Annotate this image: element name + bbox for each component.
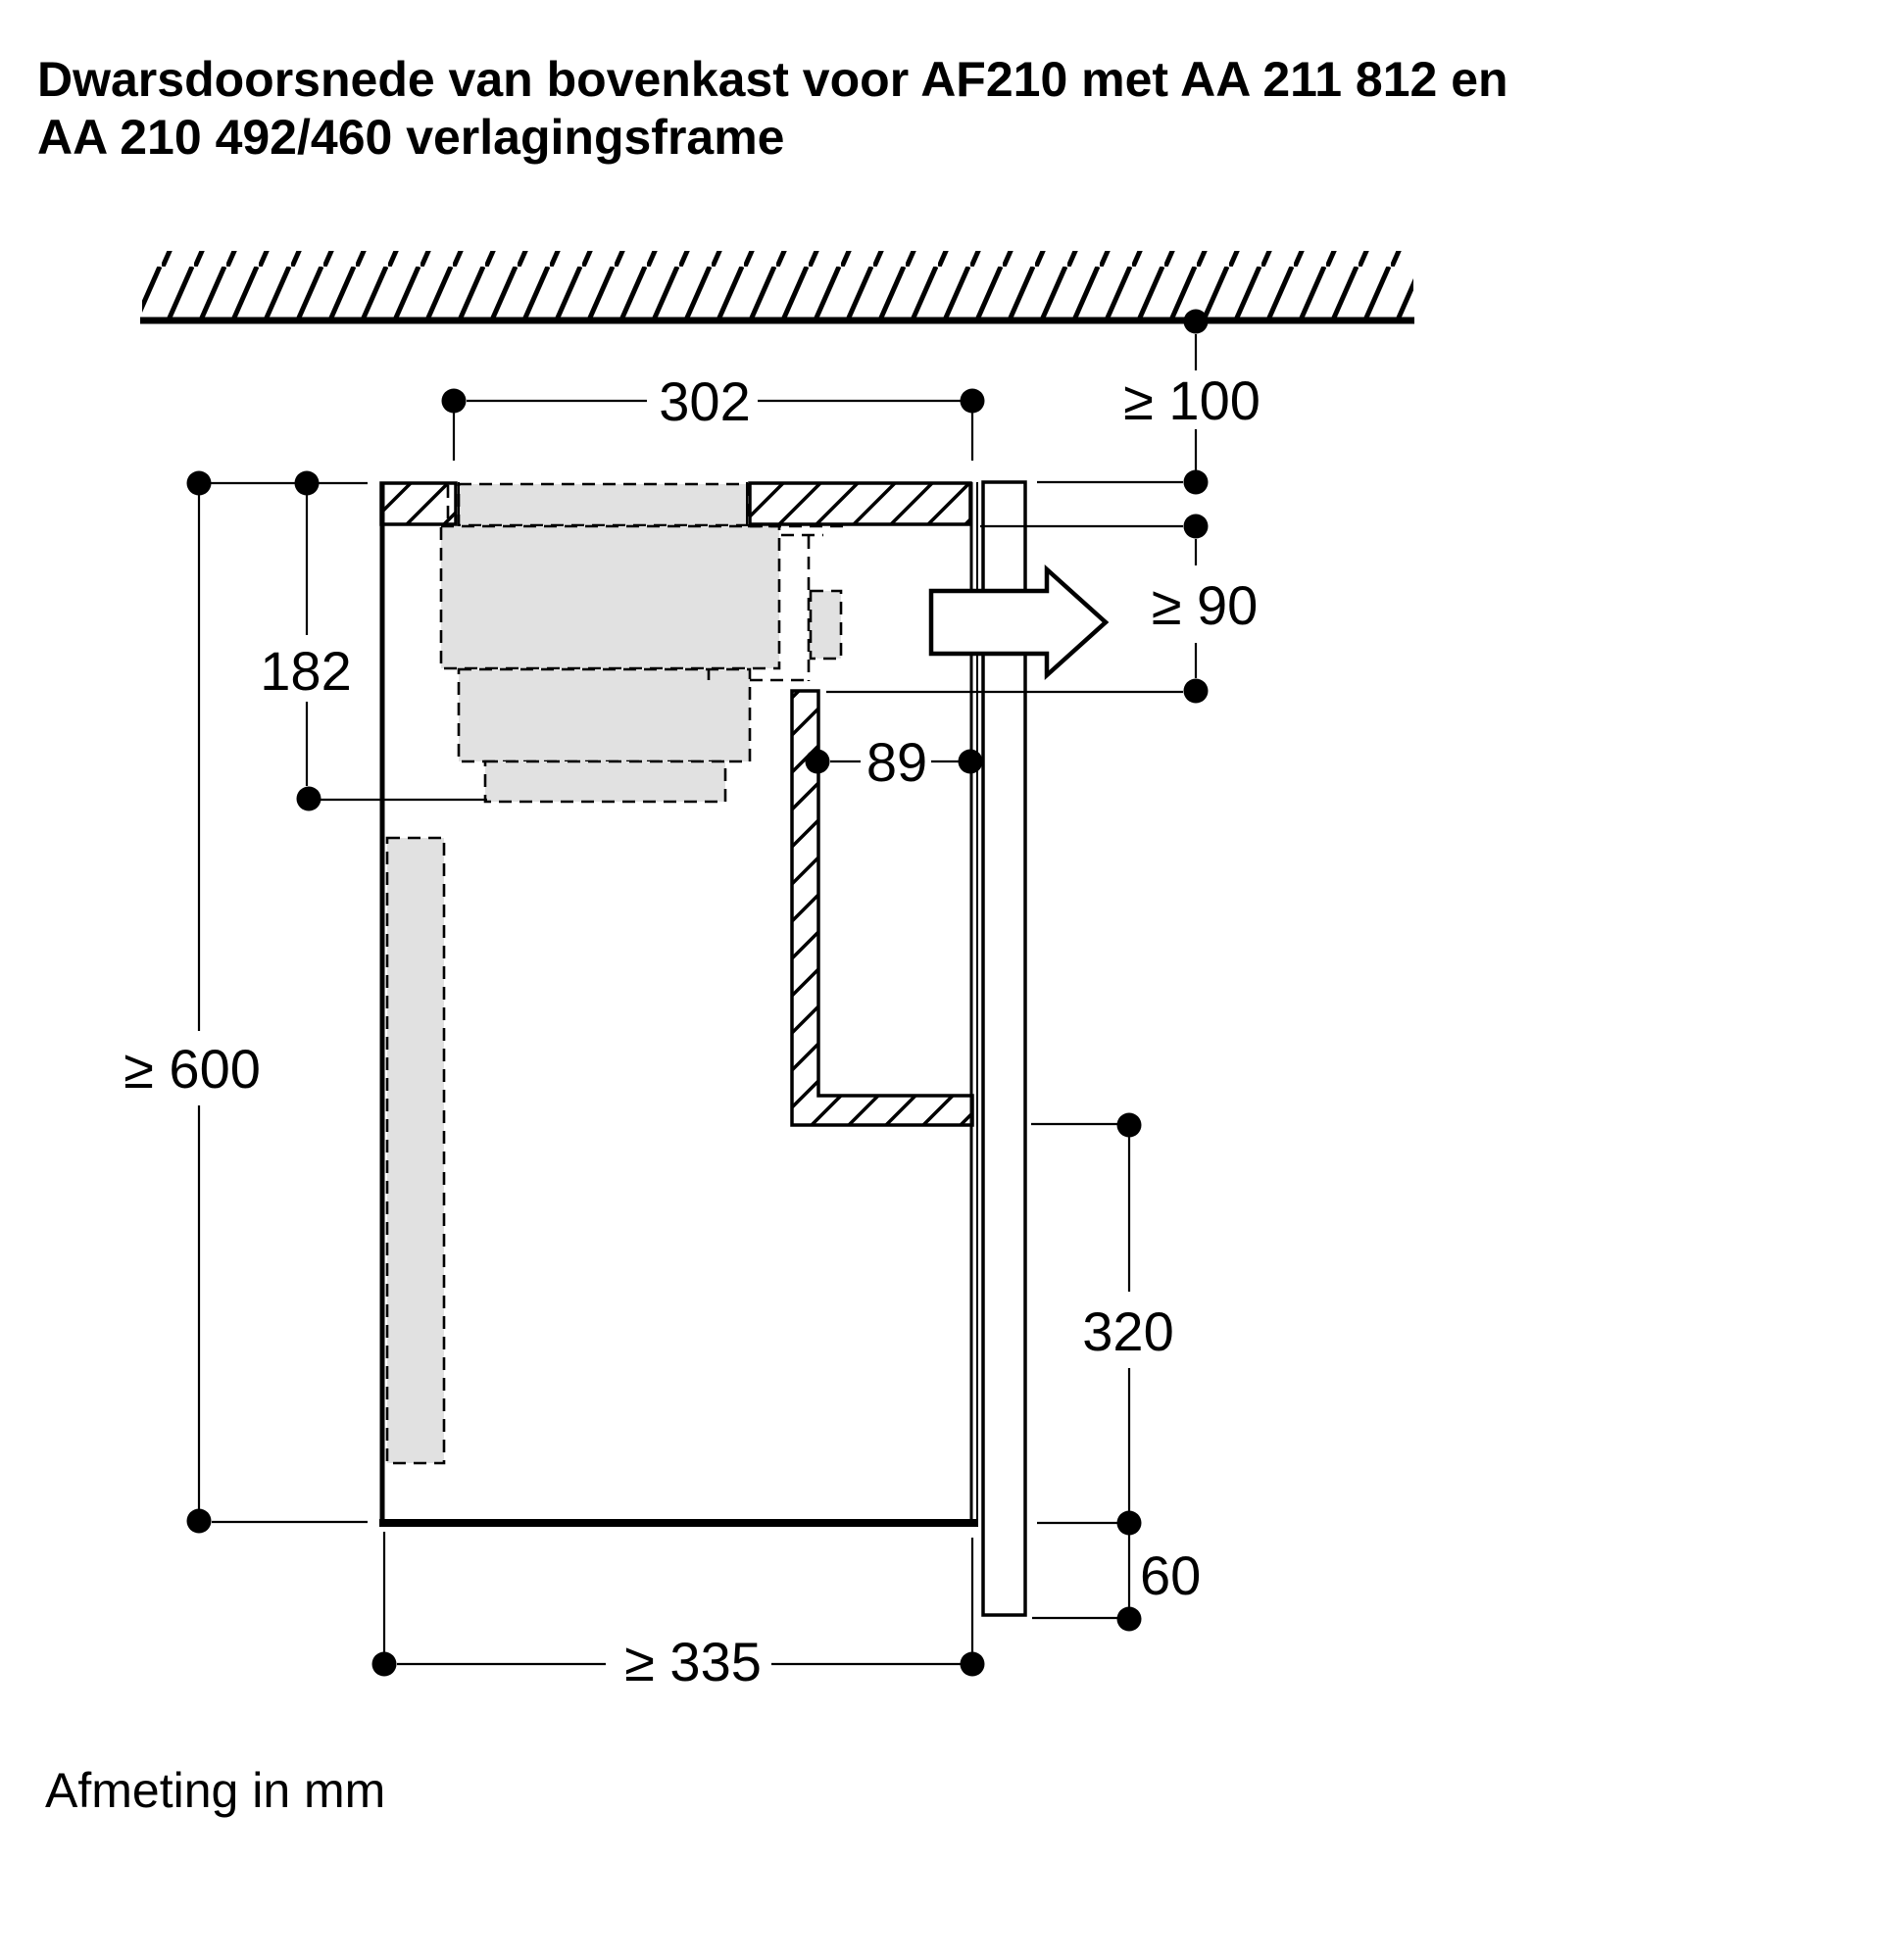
hood-step-2 <box>459 669 750 761</box>
ceiling-hatch <box>142 251 1413 318</box>
dot <box>961 1652 985 1677</box>
dot <box>1117 1511 1142 1536</box>
dot <box>1117 1113 1142 1138</box>
dot <box>1117 1607 1142 1632</box>
hood-outlet-piece <box>811 591 841 659</box>
units-note: Afmeting in mm <box>45 1762 385 1819</box>
top-panel-left-block <box>381 483 456 524</box>
dim-label-335: ≥ 335 <box>624 1631 762 1692</box>
hood-top-flange <box>459 484 748 525</box>
dot <box>1184 514 1209 539</box>
dot <box>959 750 983 774</box>
dim-label-600: ≥ 600 <box>124 1038 261 1100</box>
dot <box>295 471 320 496</box>
dot <box>187 471 212 496</box>
dim-label-182: 182 <box>260 640 351 702</box>
dot <box>372 1652 397 1677</box>
dim-60-lines <box>1032 1523 1129 1618</box>
hood-side-strip <box>387 838 444 1463</box>
dot <box>187 1509 212 1534</box>
dim-label-60: 60 <box>1140 1544 1201 1606</box>
dim-label-89: 89 <box>866 731 927 793</box>
dot <box>1184 310 1209 334</box>
hood-step-3 <box>485 761 725 802</box>
hood-body <box>441 526 779 668</box>
cross-section-diagram: 302 ≥ 100 182 ≥ 90 89 ≥ 600 320 60 ≥ 335 <box>0 0 1878 1960</box>
dim-label-302: 302 <box>659 370 750 432</box>
dot <box>1184 679 1209 704</box>
page: Dwarsdoorsnede van bovenkast voor AF210 … <box>0 0 1878 1960</box>
dot <box>961 389 985 414</box>
dim-label-90: ≥ 90 <box>1152 574 1259 636</box>
top-panel-right-block <box>750 483 970 524</box>
dim-label-100: ≥ 100 <box>1123 369 1260 431</box>
hood-appliance-dashed <box>387 484 848 1463</box>
dot <box>297 787 321 811</box>
dot <box>806 750 830 774</box>
dot <box>1184 470 1209 495</box>
dot <box>442 389 467 414</box>
ceiling <box>140 251 1414 320</box>
dim-label-320: 320 <box>1082 1300 1173 1362</box>
